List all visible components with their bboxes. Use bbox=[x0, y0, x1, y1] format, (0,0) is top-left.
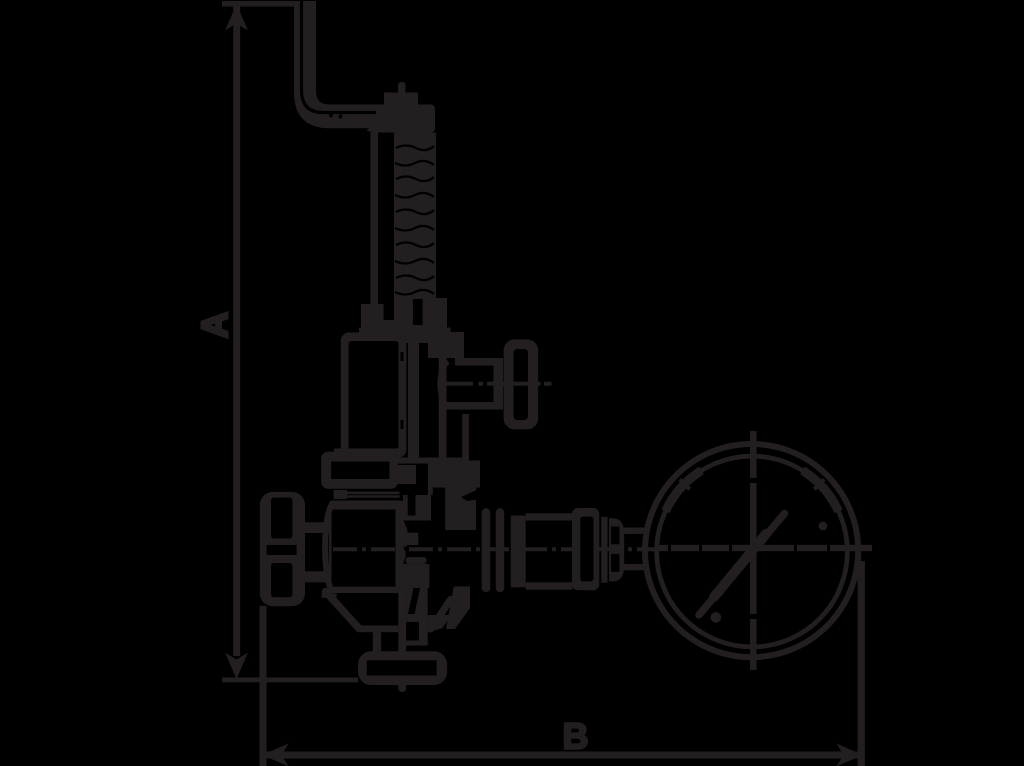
svg-text:A: A bbox=[194, 312, 235, 338]
svg-text:B: B bbox=[563, 716, 589, 757]
